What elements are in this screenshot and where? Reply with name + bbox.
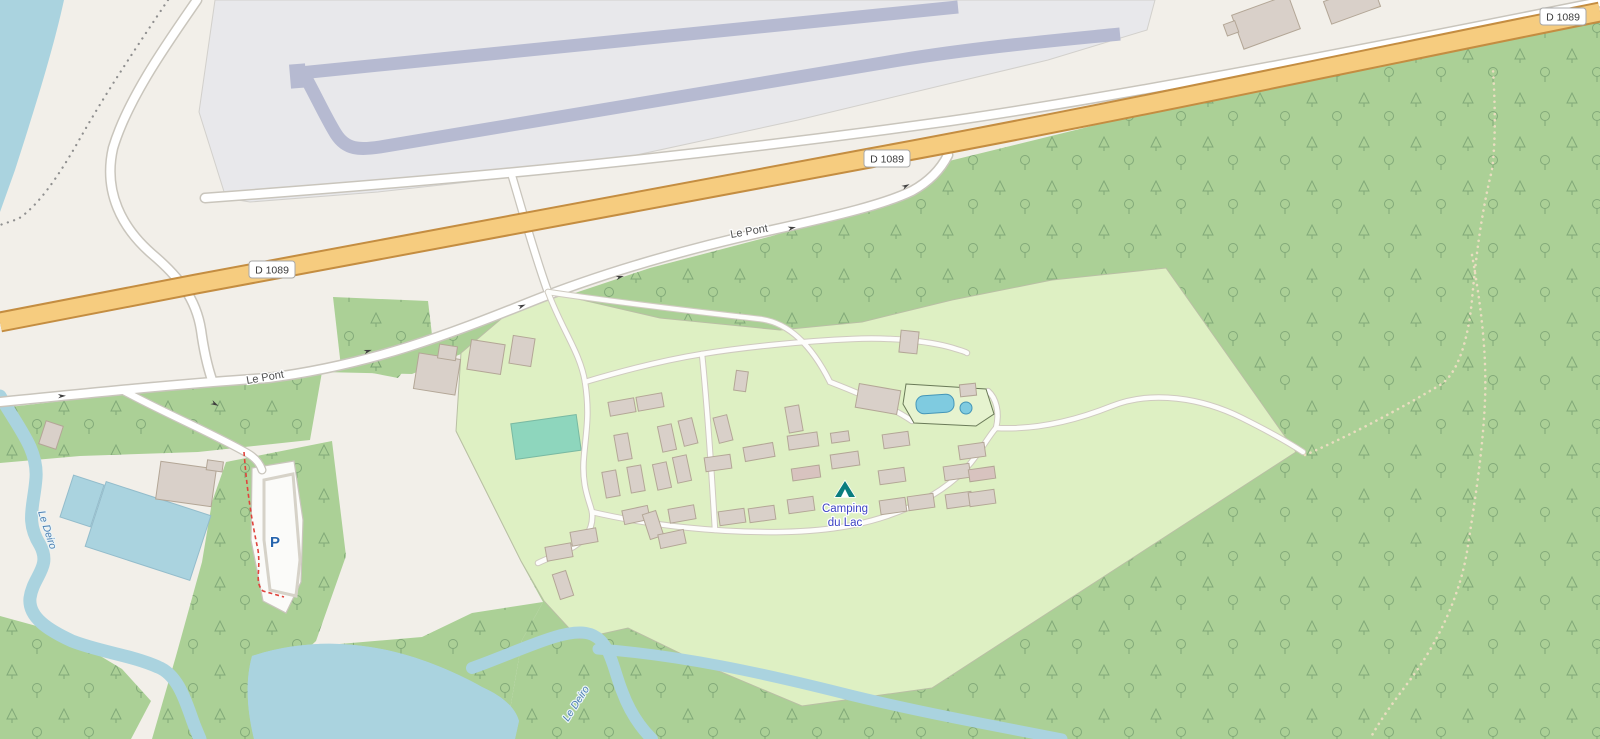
road-ref-label: D 1089 bbox=[255, 265, 289, 277]
road-ref-badge-right: D 1089 bbox=[1540, 8, 1586, 25]
road-ref-badge-left: D 1089 bbox=[249, 261, 295, 278]
pool-hut bbox=[959, 383, 976, 397]
map-canvas[interactable]: D 1089 D 1089 D 1089 Le Pont Le Pont Le … bbox=[0, 0, 1600, 739]
chalet bbox=[718, 508, 746, 525]
building bbox=[467, 340, 505, 375]
chalet bbox=[879, 497, 907, 514]
building bbox=[509, 335, 535, 366]
parking-icon[interactable]: P bbox=[270, 534, 280, 551]
building bbox=[734, 370, 749, 391]
chalet bbox=[943, 463, 971, 480]
chalet bbox=[878, 467, 906, 484]
chalet bbox=[704, 454, 732, 471]
building bbox=[899, 330, 919, 354]
building bbox=[438, 344, 458, 361]
chalet bbox=[968, 489, 996, 506]
chalet bbox=[787, 496, 815, 513]
chalet bbox=[882, 431, 910, 448]
chalet bbox=[958, 442, 986, 459]
chalet bbox=[907, 493, 935, 510]
road-ref-label: D 1089 bbox=[870, 154, 904, 166]
building bbox=[206, 460, 223, 472]
chalet bbox=[748, 505, 776, 522]
kids-pool bbox=[960, 402, 972, 414]
campsite-label-line2[interactable]: du Lac bbox=[828, 517, 863, 529]
swimming-pool bbox=[915, 394, 954, 415]
campsite-label-line1[interactable]: Camping bbox=[822, 503, 868, 515]
road-ref-label: D 1089 bbox=[1546, 12, 1580, 24]
pool-complex bbox=[903, 384, 994, 426]
road-ref-badge-center: D 1089 bbox=[864, 150, 910, 167]
chalet bbox=[830, 431, 849, 443]
